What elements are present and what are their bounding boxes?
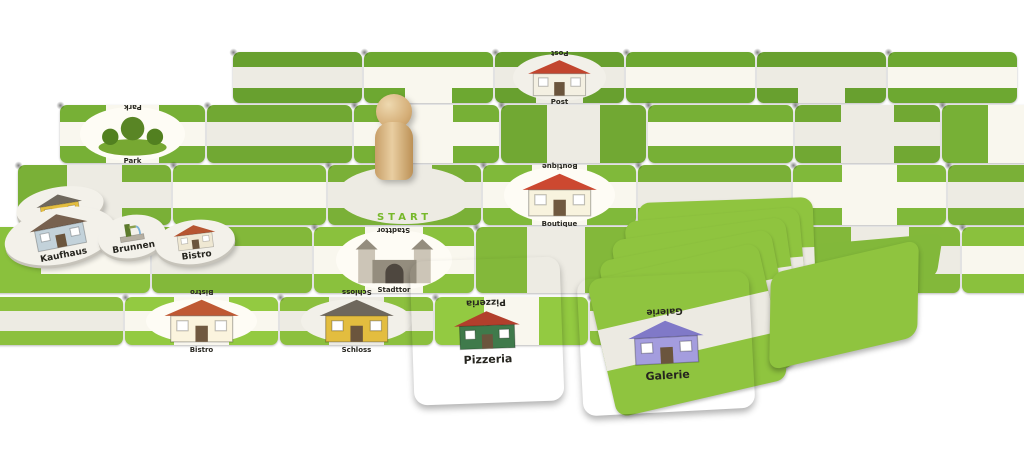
card-galerie[interactable]: Galerie Galerie [577, 271, 756, 417]
path-segment [233, 67, 321, 88]
board-tile [948, 165, 1024, 225]
bistro-building-icon [162, 296, 241, 346]
scene: PostPostParkParkSTARTBoutiqueBoutiqueSta… [0, 0, 1024, 467]
board-tile [207, 105, 352, 163]
path-segment [795, 122, 894, 146]
location-label-top: Bistro [190, 288, 214, 295]
bistro-building-icon [170, 220, 218, 253]
pawn-body [375, 122, 413, 180]
location-circle: ParkPark [80, 107, 184, 160]
token-label: Bistro [181, 250, 212, 263]
location-label: Stadttor [377, 287, 410, 294]
board-tile [173, 165, 326, 225]
board-tile [888, 52, 1017, 103]
path-segment [648, 122, 747, 146]
location-label: Bistro [190, 347, 214, 354]
board-tile [757, 52, 886, 103]
board-tile [501, 105, 646, 163]
card-label-top: Pizzeria [466, 296, 506, 306]
location-label-top: Schloss [342, 288, 372, 295]
board-tile [626, 52, 755, 103]
card-circle: Pizzeria Pizzeria [427, 271, 548, 390]
card-label-top: Galerie [646, 305, 683, 316]
location-circle: BistroBistro [146, 299, 256, 343]
path-segment [988, 122, 1024, 163]
card-pizzeria[interactable]: Pizzeria Pizzeria [410, 256, 565, 405]
location-label-top: Boutique [542, 162, 578, 169]
path-segment [962, 246, 1024, 274]
board-tile [0, 297, 123, 345]
tile-park: ParkPark [60, 105, 205, 163]
tile-post: PostPost [495, 52, 624, 103]
post-building-icon [526, 57, 593, 99]
wooden-pawn[interactable] [372, 94, 416, 180]
board-tile [942, 105, 1024, 163]
board-tile [962, 227, 1024, 293]
path-segment [888, 67, 976, 88]
board-tile [648, 105, 793, 163]
start-label: START [328, 212, 481, 223]
path-segment [328, 182, 432, 207]
path-segment [547, 122, 599, 163]
location-label-top: Park [124, 103, 142, 110]
tile-bistro: BistroBistro [125, 297, 278, 345]
card-label: Pizzeria [463, 353, 512, 366]
path-segment [207, 122, 306, 146]
card-circle: Galerie Galerie [596, 285, 736, 401]
location-label: Schloss [342, 347, 372, 354]
card-label: Galerie [645, 368, 690, 381]
path-segment [948, 182, 1024, 207]
path-segment [173, 182, 277, 207]
park-building-icon [95, 111, 170, 158]
location-circle: SchlossSchloss [301, 299, 411, 343]
pizzeria-building-icon [451, 307, 523, 353]
boutique-building-icon [520, 170, 599, 220]
board-tile [795, 105, 940, 163]
galerie-building-icon [624, 315, 707, 369]
schloss-building-icon [317, 296, 396, 346]
path-segment [0, 311, 74, 331]
location-circle: PostPost [513, 54, 606, 101]
location-circle: BoutiqueBoutique [504, 167, 614, 222]
path-segment [798, 67, 844, 103]
location-label-top: Stadttor [377, 226, 410, 233]
location-label-top: Post [551, 49, 568, 56]
board-tile [233, 52, 362, 103]
path-segment [626, 67, 714, 88]
